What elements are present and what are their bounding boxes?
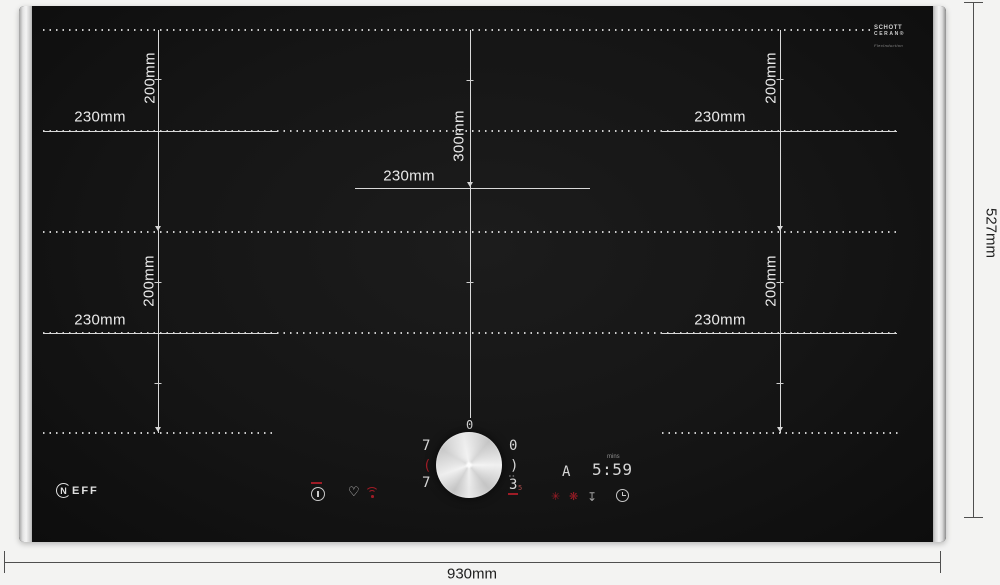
clock-hand xyxy=(622,495,626,496)
left-display-bracket: ( xyxy=(423,459,431,473)
dimension-tick xyxy=(777,383,784,384)
wifi-dot xyxy=(371,495,374,498)
right-display-top-digit: 0 xyxy=(509,439,517,453)
hob-diagram: 230mm 200mm 230mm 200mm 230mm 300mm 230m… xyxy=(0,0,1000,585)
power-icon-bar xyxy=(317,491,319,497)
dimension-tick xyxy=(467,282,474,283)
schott-ceran-logo: SCHOTT CERAN® FlexInduction xyxy=(874,25,905,48)
neff-logo-n: N xyxy=(56,483,71,498)
zone-bottom-right-width-label: 230mm xyxy=(694,312,746,329)
dimension-line xyxy=(43,333,278,334)
overall-height-label: 527mm xyxy=(983,208,1000,258)
zone-top-left-width-label: 230mm xyxy=(74,109,126,126)
pan-down-icon[interactable]: ↧ xyxy=(587,491,597,503)
zone-bottom-left-width-label: 230mm xyxy=(74,312,126,329)
dimension-line xyxy=(355,188,590,189)
zone-indicator-display: A xyxy=(562,465,570,479)
small-top-display: 0 xyxy=(466,419,473,431)
overall-width-cap-right xyxy=(940,551,941,573)
dimension-line xyxy=(470,30,471,418)
overall-width-cap-left xyxy=(4,551,5,573)
power-level-suffix: 5 xyxy=(518,485,522,492)
arrowhead-icon xyxy=(155,427,161,432)
overall-height-line xyxy=(973,2,974,518)
overall-height-cap-bottom xyxy=(964,517,983,518)
power-icon[interactable] xyxy=(311,487,325,501)
zone-bottom-right-height-label: 200mm xyxy=(763,255,780,307)
neff-logo: N EFF xyxy=(56,483,99,498)
power-level-digit: 3 xyxy=(509,478,517,492)
neff-logo-text: EFF xyxy=(72,485,99,497)
clean-icon[interactable]: ✳ xyxy=(551,492,560,503)
zone-center-width-label: 230mm xyxy=(383,168,435,185)
dimension-line xyxy=(43,131,278,132)
home-connect-wifi-icon[interactable] xyxy=(365,487,380,499)
fan-icon[interactable]: ❋ xyxy=(569,492,578,503)
arrowhead-icon xyxy=(155,226,161,231)
zone-center-height-label: 300mm xyxy=(451,110,468,162)
overall-height-cap-top xyxy=(964,2,983,3)
dimension-tick xyxy=(155,383,162,384)
favorite-heart-icon[interactable]: ♡ xyxy=(348,485,360,498)
flexinduction-text: FlexInduction xyxy=(874,44,905,49)
timer-clock-icon[interactable] xyxy=(616,489,629,502)
overall-width-line xyxy=(4,562,941,563)
zone-dotted-line xyxy=(43,432,277,434)
arrowhead-icon xyxy=(467,182,473,187)
left-display-top-digit: 7 xyxy=(422,439,430,453)
dimension-tick xyxy=(467,80,474,81)
overall-width-label: 930mm xyxy=(447,566,497,583)
twistpad-knob[interactable] xyxy=(436,432,502,498)
dimension-line xyxy=(780,30,781,433)
zone-top-right-width-label: 230mm xyxy=(694,109,746,126)
ceran-text: CERAN® xyxy=(874,32,905,38)
power-indicator-dash xyxy=(311,482,322,484)
zone-dotted-line xyxy=(43,29,870,31)
zone-top-right-height-label: 200mm xyxy=(763,52,780,104)
stainless-trim-left xyxy=(19,6,32,542)
power-level-underline xyxy=(508,493,518,495)
arrowhead-icon xyxy=(777,226,783,231)
stainless-trim-right xyxy=(933,6,946,542)
right-display-bracket: ) xyxy=(510,459,518,473)
left-display-bottom-digit: 7 xyxy=(422,476,430,490)
arrowhead-icon xyxy=(777,427,783,432)
zone-bottom-left-height-label: 200mm xyxy=(141,255,158,307)
timer-display: 5:59 xyxy=(592,462,633,478)
zone-top-left-height-label: 200mm xyxy=(142,52,159,104)
